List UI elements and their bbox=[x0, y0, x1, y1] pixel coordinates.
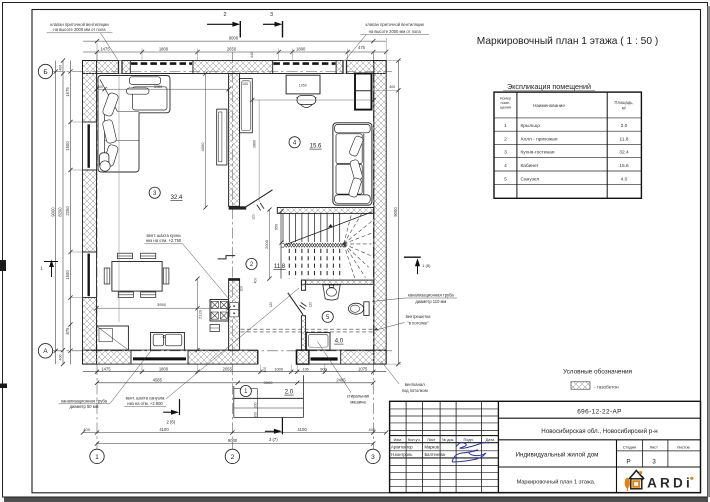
svg-text:4.0: 4.0 bbox=[335, 339, 344, 345]
svg-text:120: 120 bbox=[252, 214, 256, 220]
svg-text:2 (6): 2 (6) bbox=[166, 420, 175, 425]
svg-text:696-12-22-АР: 696-12-22-АР bbox=[577, 409, 622, 416]
svg-text:м²: м² bbox=[622, 105, 627, 110]
svg-text:Площадь,: Площадь, bbox=[615, 100, 634, 105]
svg-text:11.8: 11.8 bbox=[274, 264, 286, 270]
svg-text:диаметр 110 мм: диаметр 110 мм bbox=[415, 299, 446, 304]
svg-text:1800: 1800 bbox=[296, 46, 306, 51]
svg-text:Индивидуальный жилой дом: Индивидуальный жилой дом bbox=[516, 452, 599, 459]
svg-text:поме-: поме- bbox=[500, 101, 511, 105]
svg-text:Крыльцо: Крыльцо bbox=[521, 123, 541, 129]
svg-text:400: 400 bbox=[97, 85, 103, 89]
svg-text:Санузел: Санузел bbox=[521, 176, 540, 182]
svg-text:2650: 2650 bbox=[227, 46, 237, 51]
svg-text:на высоте 2000 мм от пола: на высоте 2000 мм от пола bbox=[53, 27, 106, 32]
svg-text:Р: Р bbox=[626, 458, 630, 465]
svg-text:3: 3 bbox=[652, 458, 656, 465]
svg-text:2000: 2000 bbox=[264, 239, 269, 249]
svg-text:120: 120 bbox=[309, 302, 313, 308]
svg-text:9000: 9000 bbox=[229, 35, 239, 40]
svg-text:400: 400 bbox=[83, 427, 90, 432]
svg-text:Подп.: Подп. bbox=[464, 437, 474, 442]
svg-text:300: 300 bbox=[253, 412, 257, 418]
svg-text:Кухня-гостиная: Кухня-гостиная bbox=[521, 150, 555, 156]
svg-text:вент. шахта санузла: вент. шахта санузла bbox=[126, 396, 165, 401]
svg-text:4100: 4100 bbox=[297, 427, 307, 432]
svg-text:низ на отм. +2.900: низ на отм. +2.900 bbox=[127, 401, 163, 406]
svg-text:475: 475 bbox=[358, 45, 366, 50]
svg-text:машина: машина bbox=[350, 399, 366, 404]
svg-text:1: 1 bbox=[504, 123, 507, 129]
svg-text:4: 4 bbox=[504, 163, 507, 169]
svg-text:1: 1 bbox=[95, 454, 99, 461]
svg-text:Кабинет: Кабинет bbox=[521, 163, 540, 169]
svg-text:"в потолке": "в потолке" bbox=[407, 321, 429, 326]
svg-text:3950: 3950 bbox=[154, 85, 162, 89]
svg-text:стиральная: стиральная bbox=[347, 394, 369, 399]
svg-text:4000: 4000 bbox=[200, 142, 205, 152]
svg-text:1: 1 bbox=[40, 266, 43, 271]
svg-text:400: 400 bbox=[254, 278, 258, 284]
svg-text:3: 3 bbox=[371, 454, 375, 461]
svg-text:2120: 2120 bbox=[197, 309, 202, 319]
svg-text:2.0: 2.0 bbox=[621, 123, 628, 129]
svg-text:вентканал: вентканал bbox=[405, 382, 425, 387]
svg-text:2.0: 2.0 bbox=[285, 390, 294, 396]
svg-text:400: 400 bbox=[59, 355, 63, 361]
svg-text:№ док.: № док. bbox=[442, 437, 454, 442]
svg-text:1475: 1475 bbox=[100, 46, 110, 51]
svg-text:Листов: Листов bbox=[677, 444, 690, 449]
svg-text:щения: щения bbox=[500, 105, 511, 109]
svg-text:400: 400 bbox=[263, 367, 267, 373]
svg-text:Марков: Марков bbox=[425, 445, 439, 450]
svg-text:400: 400 bbox=[389, 85, 395, 89]
svg-text:Дата: Дата bbox=[486, 437, 495, 442]
svg-text:А: А bbox=[43, 348, 48, 355]
svg-text:2250: 2250 bbox=[65, 206, 70, 216]
svg-text:2: 2 bbox=[223, 12, 226, 18]
svg-text:низ на отм. +2.750: низ на отм. +2.750 bbox=[146, 238, 182, 243]
svg-text:диаметр 50 мм: диаметр 50 мм bbox=[70, 404, 99, 409]
svg-text:4100: 4100 bbox=[159, 427, 169, 432]
svg-text:1500: 1500 bbox=[65, 141, 70, 151]
svg-text:Архитектор: Архитектор bbox=[391, 445, 413, 450]
svg-text:2: 2 bbox=[504, 137, 507, 143]
svg-text:3: 3 bbox=[270, 12, 273, 18]
svg-text:3950: 3950 bbox=[157, 302, 167, 307]
svg-text:1075: 1075 bbox=[358, 366, 368, 371]
svg-text:3960: 3960 bbox=[252, 140, 256, 148]
svg-text:Лист: Лист bbox=[427, 437, 436, 442]
svg-text:канализационная труба: канализационная труба bbox=[61, 399, 108, 404]
svg-text:3000: 3000 bbox=[264, 380, 274, 385]
svg-text:1950: 1950 bbox=[299, 83, 307, 87]
svg-text:Изм.: Изм. bbox=[394, 437, 402, 442]
svg-text:950: 950 bbox=[275, 224, 279, 230]
svg-text:под потолком: под потолком bbox=[402, 388, 428, 393]
svg-text:9000: 9000 bbox=[50, 207, 55, 217]
svg-text:875: 875 bbox=[65, 327, 70, 335]
svg-text:440: 440 bbox=[250, 52, 254, 58]
svg-text:Маркировочный план 1 этажа.: Маркировочный план 1 этажа. bbox=[517, 478, 596, 485]
svg-text:1500: 1500 bbox=[65, 270, 70, 280]
svg-text:Наименование: Наименование bbox=[533, 103, 565, 108]
svg-text:1800: 1800 bbox=[159, 46, 169, 51]
svg-text:400: 400 bbox=[369, 427, 376, 432]
svg-text:ARDi: ARDi bbox=[647, 476, 693, 491]
svg-text:300: 300 bbox=[253, 402, 257, 408]
svg-text:1000: 1000 bbox=[274, 366, 284, 371]
svg-text:Б: Б bbox=[43, 69, 47, 76]
svg-text:1475: 1475 bbox=[101, 366, 111, 371]
svg-text:4585: 4585 bbox=[153, 377, 163, 382]
svg-text:9000: 9000 bbox=[228, 438, 238, 443]
svg-text:300: 300 bbox=[240, 286, 244, 292]
svg-text:вентрешетка: вентрешетка bbox=[406, 314, 432, 319]
svg-text:- газобетон: - газобетон bbox=[594, 384, 619, 390]
svg-text:11.8: 11.8 bbox=[620, 137, 629, 143]
svg-text:Кол.уч.: Кол.уч. bbox=[408, 437, 421, 442]
svg-text:1 (5): 1 (5) bbox=[422, 263, 431, 268]
svg-text:400: 400 bbox=[59, 65, 63, 71]
svg-text:канализационная труба: канализационная труба bbox=[408, 293, 455, 298]
svg-text:100: 100 bbox=[242, 82, 248, 86]
svg-text:5: 5 bbox=[504, 176, 507, 182]
svg-text:Маркировочный план 1 этажа ( 1: Маркировочный план 1 этажа ( 1 : 50 ) bbox=[477, 36, 658, 47]
svg-text:на высоте 2000 мм от пола: на высоте 2000 мм от пола bbox=[369, 29, 422, 34]
svg-text:3 (7): 3 (7) bbox=[269, 437, 278, 442]
svg-text:1800: 1800 bbox=[159, 366, 169, 371]
svg-text:Номер: Номер bbox=[500, 96, 511, 100]
svg-text:8200: 8200 bbox=[58, 207, 63, 217]
svg-text:120: 120 bbox=[269, 302, 273, 308]
svg-text:15.6: 15.6 bbox=[310, 144, 322, 150]
svg-text:Холл - прихожая: Холл - прихожая bbox=[521, 137, 558, 143]
svg-text:9000: 9000 bbox=[393, 207, 398, 217]
svg-text:Новосибирская обл., Новосибирс: Новосибирская обл., Новосибирский р-н bbox=[541, 428, 657, 435]
svg-text:3: 3 bbox=[504, 150, 507, 156]
svg-text:4.0: 4.0 bbox=[621, 176, 628, 182]
svg-text:Н.контроль: Н.контроль bbox=[391, 452, 412, 457]
svg-text:Условные обозначения: Условные обозначения bbox=[563, 368, 633, 376]
svg-text:2: 2 bbox=[231, 454, 235, 461]
svg-text:195: 195 bbox=[303, 367, 309, 371]
svg-text:клапан приточной вентиляции: клапан приточной вентиляции bbox=[366, 22, 425, 27]
svg-text:1675: 1675 bbox=[65, 87, 70, 97]
svg-text:2055: 2055 bbox=[223, 366, 233, 371]
svg-text:Стадия: Стадия bbox=[623, 444, 636, 449]
svg-text:15.6: 15.6 bbox=[619, 163, 629, 169]
svg-text:32.4: 32.4 bbox=[171, 195, 183, 201]
svg-text:Балтенева: Балтенева bbox=[425, 452, 446, 457]
svg-text:Экспликация помещений: Экспликация помещений bbox=[507, 82, 591, 91]
svg-text:32.4: 32.4 bbox=[619, 150, 629, 156]
svg-text:Лист: Лист bbox=[649, 444, 658, 449]
svg-text:900: 900 bbox=[320, 366, 327, 371]
